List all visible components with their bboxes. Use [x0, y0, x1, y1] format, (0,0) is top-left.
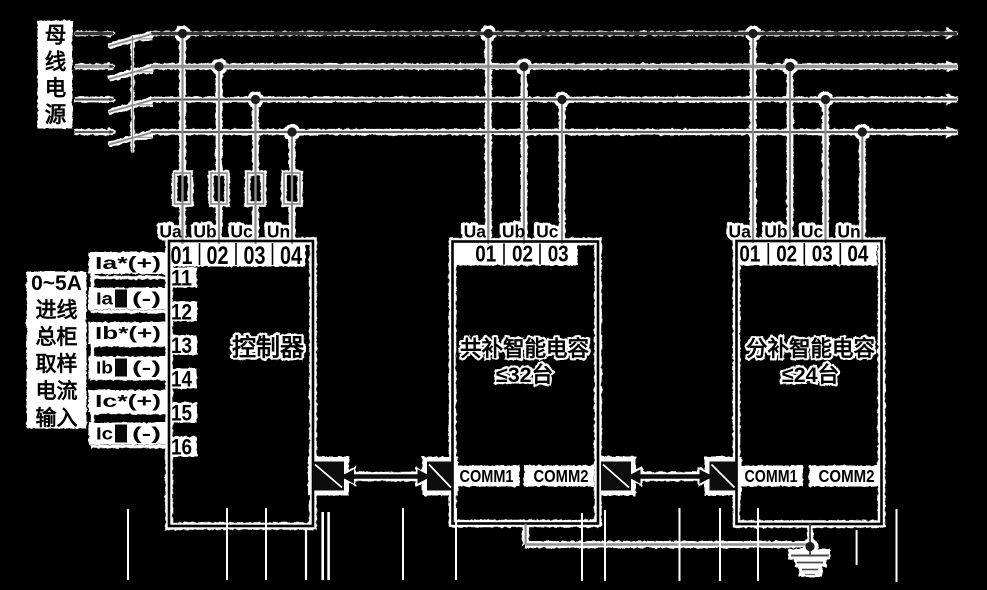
svg-text:Ua: Ua — [159, 222, 182, 242]
svg-text:13: 13 — [171, 333, 192, 358]
svg-text:Ub: Ub — [193, 222, 216, 242]
svg-text:02: 02 — [512, 241, 533, 267]
svg-text:共补智能电容: 共补智能电容 — [460, 336, 590, 361]
svg-text:03: 03 — [548, 241, 569, 267]
svg-text:Uc: Uc — [230, 222, 253, 242]
svg-text:总柜: 总柜 — [36, 325, 78, 349]
svg-text:01: 01 — [739, 241, 760, 267]
svg-text:Ic*(+): Ic*(+) — [95, 391, 161, 411]
svg-text:Ia*(+): Ia*(+) — [95, 253, 161, 273]
svg-text:COMM2: COMM2 — [819, 466, 875, 486]
svg-text:源: 源 — [45, 103, 67, 127]
svg-text:Un: Un — [267, 222, 290, 242]
svg-text:Ic: Ic — [96, 424, 113, 444]
svg-text:COMM2: COMM2 — [534, 466, 589, 486]
svg-text:04: 04 — [847, 241, 868, 267]
svg-text:Ub: Ub — [764, 222, 787, 242]
svg-text:Ia: Ia — [96, 289, 113, 309]
svg-text:控制器: 控制器 — [232, 334, 305, 362]
svg-text:≤24台: ≤24台 — [782, 362, 839, 387]
svg-text:Uc: Uc — [801, 222, 824, 242]
svg-text:0~5A: 0~5A — [31, 272, 82, 295]
svg-text:Ua: Ua — [729, 222, 752, 242]
svg-text:线: 线 — [45, 49, 67, 74]
svg-text:Uc: Uc — [536, 222, 559, 242]
svg-text:15: 15 — [171, 401, 192, 426]
svg-text:16: 16 — [171, 435, 192, 460]
svg-text:14: 14 — [171, 367, 193, 392]
svg-text:Ua: Ua — [464, 222, 487, 242]
svg-text:(-): (-) — [132, 358, 161, 378]
svg-text:取样: 取样 — [36, 352, 78, 376]
svg-text:母: 母 — [45, 24, 67, 48]
svg-text:COMM1: COMM1 — [745, 466, 798, 486]
svg-text:Ub: Ub — [502, 222, 525, 242]
svg-text:进线: 进线 — [36, 298, 78, 322]
svg-text:02: 02 — [207, 242, 229, 270]
svg-text:Ib*(+): Ib*(+) — [95, 323, 161, 343]
svg-text:02: 02 — [776, 241, 797, 267]
svg-text:分补智能电容: 分补智能电容 — [746, 336, 876, 361]
svg-text:(-): (-) — [132, 289, 161, 309]
svg-text:04: 04 — [280, 242, 302, 270]
svg-text:01: 01 — [475, 241, 496, 267]
svg-text:电: 电 — [45, 77, 67, 101]
svg-text:03: 03 — [812, 241, 833, 267]
svg-text:≤32台: ≤32台 — [496, 362, 553, 387]
svg-text:11: 11 — [171, 266, 192, 291]
svg-text:(-): (-) — [132, 424, 161, 444]
svg-text:03: 03 — [244, 242, 266, 270]
svg-text:输入: 输入 — [36, 406, 78, 430]
svg-text:12: 12 — [171, 300, 192, 325]
svg-text:COMM1: COMM1 — [460, 466, 514, 486]
svg-text:电流: 电流 — [36, 379, 78, 403]
svg-text:Ib: Ib — [96, 358, 113, 378]
svg-text:Un: Un — [837, 222, 860, 242]
